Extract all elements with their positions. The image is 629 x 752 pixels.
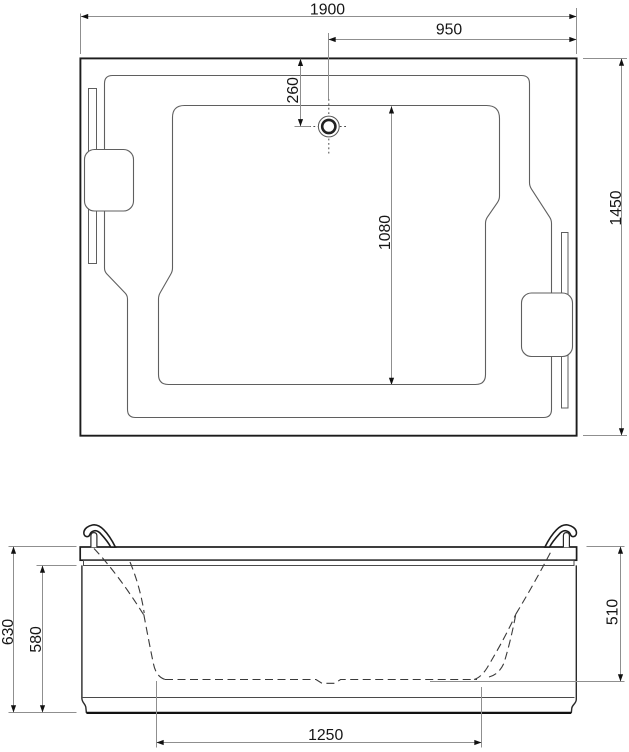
svg-text:1250: 1250 (308, 727, 343, 744)
svg-text:950: 950 (436, 22, 463, 39)
svg-text:510: 510 (605, 599, 622, 626)
svg-text:1900: 1900 (310, 1, 345, 18)
svg-text:1450: 1450 (608, 190, 625, 225)
svg-text:1080: 1080 (377, 215, 394, 250)
svg-text:630: 630 (0, 619, 17, 646)
svg-text:260: 260 (285, 77, 302, 104)
svg-text:580: 580 (28, 626, 45, 653)
